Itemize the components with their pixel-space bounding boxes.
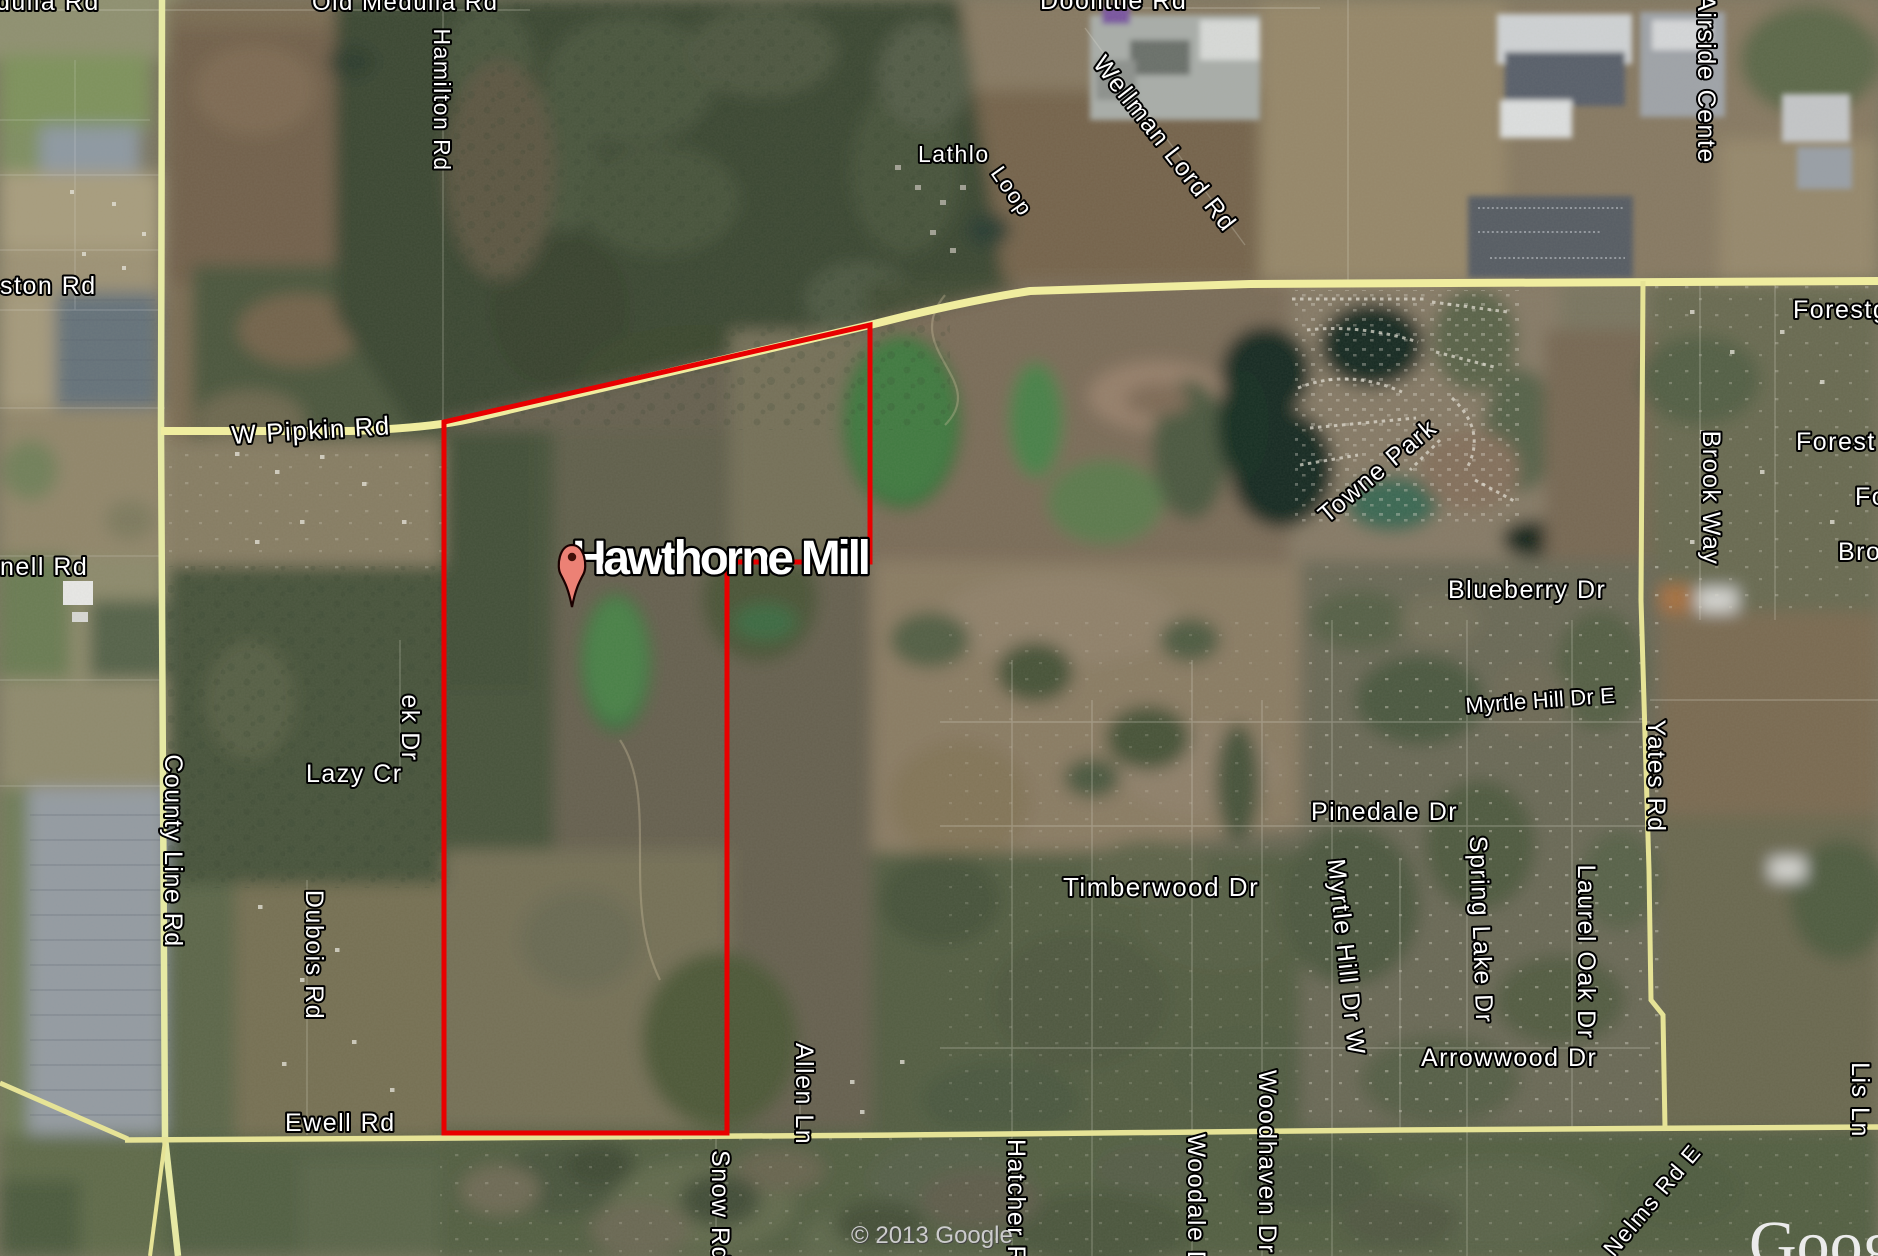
svg-text:Woodhaven Dr: Woodhaven Dr: [1253, 1070, 1281, 1254]
svg-text:Brook Way: Brook Way: [1697, 431, 1725, 566]
svg-text:Old Medulla Rd: Old Medulla Rd: [312, 0, 498, 16]
svg-text:ek Dr: ek Dr: [396, 694, 424, 761]
svg-text:Hamilton Rd: Hamilton Rd: [429, 28, 455, 171]
svg-text:Lazy Cr: Lazy Cr: [306, 760, 403, 788]
svg-text:Forestg: Forestg: [1793, 296, 1878, 324]
svg-text:Blueberry Dr: Blueberry Dr: [1448, 576, 1606, 604]
svg-text:Allen Ln: Allen Ln: [790, 1043, 818, 1145]
svg-text:Lathlo: Lathlo: [918, 141, 990, 167]
svg-text:© 2013 Google: © 2013 Google: [851, 1222, 1013, 1249]
svg-text:Lis Ln: Lis Ln: [1846, 1062, 1874, 1138]
svg-text:County Line Rd: County Line Rd: [159, 754, 187, 947]
svg-text:For: For: [1855, 483, 1878, 511]
svg-text:Brook: Brook: [1838, 538, 1878, 566]
svg-text:Yates Rd: Yates Rd: [1642, 720, 1670, 833]
svg-text:Dubois Rd: Dubois Rd: [300, 890, 328, 1020]
svg-text:Arrowwood Dr: Arrowwood Dr: [1421, 1044, 1597, 1072]
svg-text:Doolittle Rd: Doolittle Rd: [1040, 0, 1187, 15]
svg-text:Laurel Oak Dr: Laurel Oak Dr: [1572, 864, 1600, 1039]
svg-text:Google: Google: [1749, 1208, 1878, 1256]
svg-text:nell Rd: nell Rd: [0, 553, 88, 581]
svg-text:Ewell Rd: Ewell Rd: [285, 1109, 396, 1137]
svg-text:Hawthorne Mill: Hawthorne Mill: [572, 532, 871, 585]
svg-text:ston Rd: ston Rd: [0, 272, 97, 300]
svg-text:Airside Cente: Airside Cente: [1692, 0, 1720, 164]
svg-text:dulla Rd: dulla Rd: [0, 0, 100, 16]
svg-text:Forest B: Forest B: [1796, 428, 1878, 456]
svg-text:Timberwood Dr: Timberwood Dr: [1063, 872, 1259, 902]
svg-text:Pinedale Dr: Pinedale Dr: [1311, 798, 1458, 826]
svg-text:Woodale D: Woodale D: [1182, 1134, 1210, 1256]
svg-text:Snow Rd: Snow Rd: [706, 1150, 734, 1256]
